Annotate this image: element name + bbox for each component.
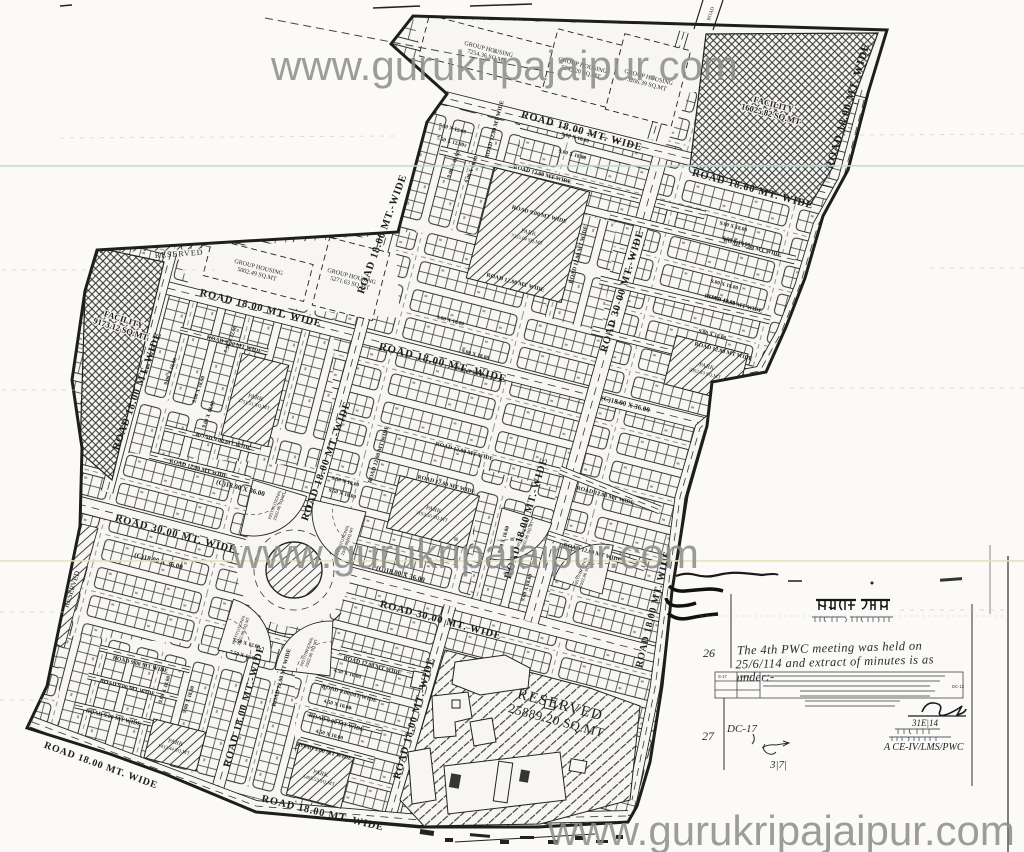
svg-text:www.gurukripajaipur.com: www.gurukripajaipur.com	[547, 807, 1015, 852]
svg-text:DC-17: DC-17	[726, 723, 757, 735]
svg-text:www.gurukripajaipur.com: www.gurukripajaipur.com	[270, 42, 738, 89]
svg-text:DC-12: DC-12	[952, 684, 965, 689]
svg-text:www.gurukripajaipur.com: www.gurukripajaipur.com	[231, 530, 699, 577]
svg-text:3|7|: 3|7|	[769, 759, 787, 771]
svg-text:26: 26	[703, 646, 715, 660]
svg-text:DC-12: DC-12	[740, 674, 753, 679]
svg-text:31E|14: 31E|14	[911, 718, 938, 728]
svg-text:S-17: S-17	[718, 674, 728, 679]
svg-text:A CE-IV/LMS/PWC: A CE-IV/LMS/PWC	[883, 742, 964, 753]
svg-text:27: 27	[702, 729, 715, 743]
